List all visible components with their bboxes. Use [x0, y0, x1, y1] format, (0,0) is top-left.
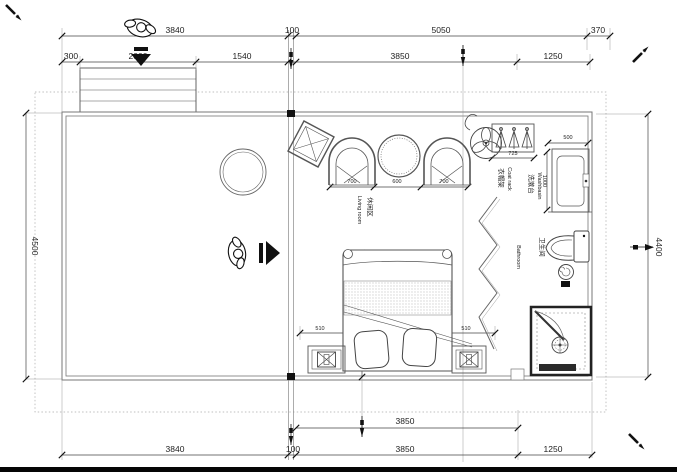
entry-steps [80, 68, 196, 112]
dim-living-600: 600 [392, 179, 401, 185]
section-pin-icon [289, 424, 293, 445]
divider-wall [289, 30, 294, 460]
section-pin-icon [360, 416, 364, 437]
dim-bottom-1250: 1250 [544, 444, 563, 454]
pillow [402, 328, 438, 367]
nightstand-left [308, 346, 345, 373]
bathroom-label-zh: 卫生间 [538, 237, 547, 257]
decor-diamond [288, 121, 334, 167]
coat-rack-label-en: Coat rack [506, 167, 512, 191]
washbasin-label-zh: 洗漱台 [527, 174, 536, 194]
dim-bottom-3850: 3850 [396, 444, 415, 454]
coat-hanger-icon [522, 127, 532, 149]
dim-top2-1540: 1540 [233, 51, 252, 61]
entry-person-room [226, 235, 280, 272]
dim-top2-3850: 3850 [391, 51, 410, 61]
bathroom-label-en: Bathroom [515, 245, 521, 269]
dim-top-100: 100 [285, 25, 299, 35]
living-room-label-en: Living room [356, 196, 362, 225]
pen-marker-icon [629, 434, 645, 450]
bed [343, 250, 472, 372]
toilet-icon [546, 231, 589, 287]
armchair-icon [424, 138, 470, 185]
shower-room [531, 307, 591, 375]
dim-top-5050: 5050 [432, 25, 451, 35]
nightstand-right [452, 346, 486, 373]
down-arrow-icon [131, 47, 151, 66]
dim-bed-510a: 510 [315, 326, 324, 332]
person-top-view-icon [226, 235, 249, 272]
page-bottom-edge [0, 467, 677, 472]
dim-bottom-3840: 3840 [166, 444, 185, 454]
dim-top-370: 370 [591, 25, 605, 35]
wall-joint-bottom [287, 373, 295, 380]
shower-mat [539, 364, 576, 371]
horizontal-pin-icon [630, 244, 654, 251]
round-table-icon [378, 135, 420, 177]
person-top-view-icon [121, 15, 159, 40]
entry-person-top [121, 15, 159, 66]
coat-hanger-icon [509, 127, 519, 149]
coat-rack [492, 124, 534, 152]
coat-rack-label-zh: 衣帽架 [497, 168, 506, 188]
washbasin-icon [548, 149, 592, 212]
pen-marker-icon [633, 47, 649, 63]
left-room-table [220, 149, 266, 195]
table-lamp-icon [460, 352, 478, 367]
right-arrow-icon [259, 241, 280, 265]
wall-column [511, 369, 524, 380]
dim-bottom-inner-3850: 3850 [396, 416, 415, 426]
section-pin-icon [461, 45, 465, 66]
section-pin-icon [289, 48, 293, 69]
dim-bed-510b: 510 [461, 326, 470, 332]
armchair-icon [329, 138, 375, 185]
dim-top2-300: 300 [64, 51, 78, 61]
shower-drain-icon [552, 337, 568, 353]
living-room-label-zh: 休闲区 [366, 197, 375, 217]
wall-joint-top [287, 110, 295, 117]
dim-top2-1250: 1250 [544, 51, 563, 61]
washbasin-label-en: Washbasin [536, 172, 542, 199]
coat-hanger-icon [496, 127, 506, 149]
table-lamp-icon [318, 352, 336, 367]
dim-left-4500: 4500 [30, 237, 40, 256]
dim-bottom-100: 100 [286, 444, 300, 454]
pen-marker-icon [6, 5, 22, 21]
dim-top-3840: 3840 [166, 25, 185, 35]
dim-living-700a: 700 [347, 179, 356, 185]
pillow [353, 330, 389, 370]
folding-partition [479, 197, 500, 351]
floor-plan-canvas: 3840 100 5050 370 300 2000 1540 3850 125… [0, 0, 677, 473]
dim-right-4400: 4400 [654, 238, 664, 257]
dim-wash-500: 500 [563, 135, 572, 141]
floor-plan-drawing: 3840 100 5050 370 300 2000 1540 3850 125… [0, 0, 677, 473]
